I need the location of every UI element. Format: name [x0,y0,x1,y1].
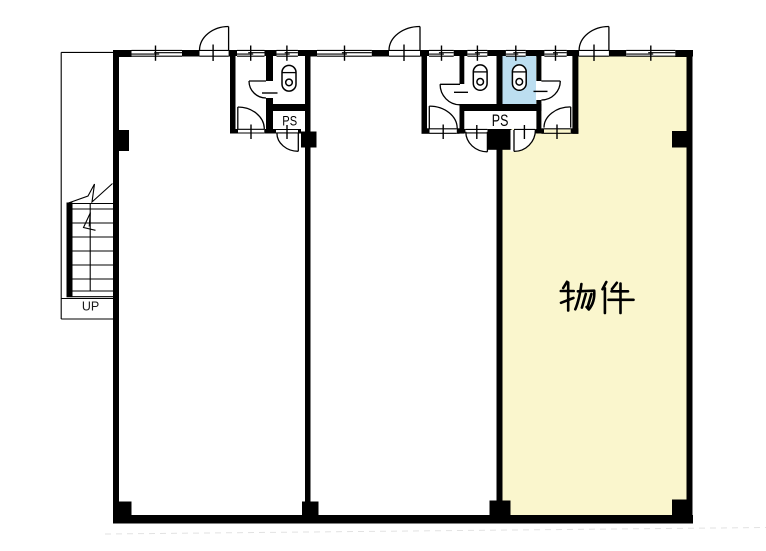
svg-text:PS: PS [492,112,509,130]
svg-text:UP: UP [82,300,99,314]
svg-text:PS: PS [282,112,297,128]
